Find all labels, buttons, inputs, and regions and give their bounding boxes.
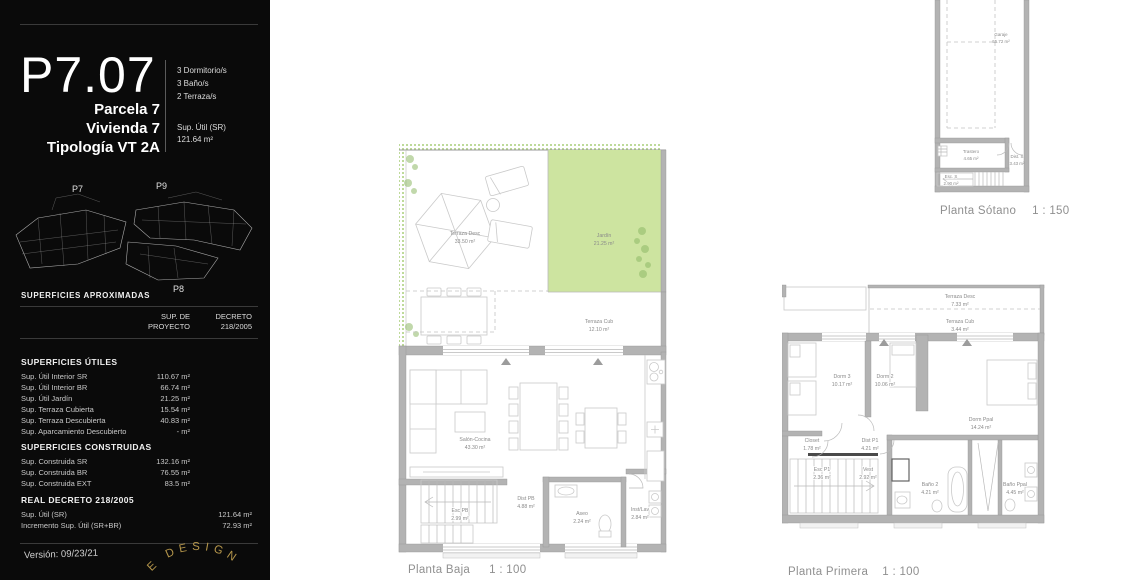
divider	[165, 60, 166, 152]
utiles-rows: Sup. Útil Interior SR110.67 m² Sup. Útil…	[21, 372, 190, 437]
room-labels: Garaje 55.72 m² Trastero 4.65 m² Dist. S…	[944, 32, 1025, 186]
divider	[20, 24, 258, 25]
row-value: 66.74 m²	[160, 383, 190, 394]
spec-banos: 3 Baño/s	[177, 77, 227, 90]
room-label-vest: Vest	[863, 467, 874, 473]
room-area-salon: 43.30 m²	[465, 445, 486, 451]
divider	[20, 306, 258, 307]
planta-baja-caption: Planta Baja 1 : 100	[408, 564, 526, 576]
table-row: Sup. Útil Interior BR66.74 m²	[21, 383, 190, 394]
room-area-bano-ppal: 4.45 m²	[1006, 490, 1024, 496]
room-area-dist: 4.88 m²	[517, 504, 535, 510]
table-row: Sup. Aparcamiento Descubierto- m²	[21, 427, 190, 438]
table-row: Sup. Construida SR132.16 m²	[21, 457, 190, 468]
siteplan-wireframe	[16, 192, 252, 280]
room-label-terraza-cub: Terraza Cub	[946, 319, 974, 325]
caption-scale: 1 : 100	[882, 566, 919, 578]
row-value: 21.25 m²	[160, 394, 190, 405]
planta-sotano-caption: Planta Sótano 1 : 150	[940, 205, 1069, 217]
room-area-closet: 1.78 m²	[803, 446, 821, 452]
row-label: Incremento Sup. Útil (SR+BR)	[21, 521, 121, 532]
room-label-dist-s: Dist. S	[1011, 154, 1024, 159]
room-label-terraza-desc: Terraza Desc	[945, 294, 976, 300]
row-value: 40.83 m²	[160, 416, 190, 427]
construidas-title: SUPERFICIES CONSTRUIDAS	[21, 442, 152, 452]
room-area-bano2: 4.21 m²	[921, 490, 939, 496]
room-label-dist: Dist PB	[517, 496, 535, 502]
row-label: Sup. Útil Interior SR	[21, 372, 87, 383]
room-label-dist-p1: Dist P1	[862, 438, 879, 444]
interior-furniture	[410, 355, 665, 481]
construidas-rows: Sup. Construida SR132.16 m² Sup. Constru…	[21, 457, 190, 490]
room-area-aseo: 2.24 m²	[573, 519, 591, 525]
row-label: Sup. Útil (SR)	[21, 510, 67, 521]
caption-label: Planta Primera	[788, 566, 868, 578]
room-label-esc-s: Esc. S	[945, 174, 958, 179]
table-header-decreto: DECRETO 218/2005	[21, 312, 252, 332]
unit-specs: 3 Dormitorio/s 3 Baño/s 2 Terraza/s	[177, 64, 227, 103]
room-area-dorm2: 10.06 m²	[875, 382, 896, 388]
brand-logo-arc: E DESIGN	[128, 538, 270, 580]
room-area-trastero: 4.65 m²	[964, 156, 979, 161]
room-area-terraza-cub: 12.10 m²	[589, 327, 610, 333]
room-label-dorm3: Dorm 3	[833, 374, 850, 380]
garage-layer	[947, 0, 995, 128]
row-label: Sup. Terraza Cubierta	[21, 405, 94, 416]
unit-identity: Parcela 7 Vivienda 7 Tipología VT 2A	[20, 100, 160, 157]
caption-label: Planta Sótano	[940, 205, 1016, 217]
room-label-salon: Salón-Cocina	[459, 437, 490, 443]
room-label-terraza-cub: Terraza Cub	[585, 319, 613, 325]
decreto-rows: Sup. Útil (SR)121.64 m² Incremento Sup. …	[21, 510, 252, 532]
table-row: Sup. Terraza Cubierta15.54 m²	[21, 405, 190, 416]
brand-logo-text: E DESIGN	[145, 541, 242, 574]
room-area-garaje: 55.72 m²	[992, 39, 1010, 44]
room-label-bano2: Baño 2	[922, 482, 939, 488]
version-text: Versión: 09/23/21	[24, 548, 98, 562]
siteplan-label-p9: P9	[156, 181, 167, 191]
room-area-jardin: 21.25 m²	[594, 241, 615, 247]
row-label: Sup. Útil Interior BR	[21, 383, 87, 394]
planta-primera-caption: Planta Primera 1 : 100	[788, 566, 920, 578]
table-row: Incremento Sup. Útil (SR+BR)72.93 m²	[21, 521, 252, 532]
room-label-esc-p1: Esc P1	[814, 467, 831, 473]
row-value: 15.54 m²	[160, 405, 190, 416]
row-label: Sup. Aparcamiento Descubierto	[21, 427, 126, 438]
utiles-title: SUPERFICIES ÚTILES	[21, 357, 117, 367]
room-area-dist-p1: 4.21 m²	[861, 446, 879, 452]
room-label-jardin: Jardín	[597, 233, 612, 239]
room-label-garaje: Garaje	[994, 32, 1008, 37]
planta-sotano-drawing: Garaje 55.72 m² Trastero 4.65 m² Dist. S…	[929, 0, 1035, 198]
tipologia: Tipología VT 2A	[20, 138, 160, 157]
room-label-trastero: Trastero	[963, 149, 980, 154]
room-label-closet: Closet	[805, 438, 820, 444]
room-label-aseo: Aseo	[576, 511, 588, 517]
sidebar: P7.07 3 Dormitorio/s 3 Baño/s 2 Terraza/…	[0, 0, 270, 580]
sup-util-label: Sup. Útil (SR)	[177, 122, 226, 134]
room-label-bano-ppal: Baño Ppal	[1003, 482, 1027, 488]
row-value: 110.67 m²	[157, 372, 190, 383]
row-value: 76.55 m²	[160, 468, 190, 479]
siteplan-drawing: P7 P9 P8	[8, 180, 262, 302]
row-label: Sup. Construida SR	[21, 457, 87, 468]
room-area-esc-p1: 2.36 m²	[813, 475, 831, 481]
planta-primera-drawing: Terraza Desc 7.33 m² Terraza Cub 3.44 m²…	[782, 283, 1048, 533]
row-value: 121.64 m²	[218, 510, 252, 521]
row-value: - m²	[177, 427, 190, 438]
table-row: Sup. Útil Interior SR110.67 m²	[21, 372, 190, 383]
row-label: Sup. Útil Jardín	[21, 394, 72, 405]
datasheet-page: P7.07 3 Dormitorio/s 3 Baño/s 2 Terraza/…	[0, 0, 1127, 580]
approx-title: SUPERFICIES APROXIMADAS	[21, 291, 150, 300]
parcela: Parcela 7	[20, 100, 160, 119]
room-area-dorm3: 10.17 m²	[832, 382, 853, 388]
room-area-esc: 2.99 m²	[451, 516, 469, 522]
table-row: Sup. Útil (SR)121.64 m²	[21, 510, 252, 521]
row-value: 83.5 m²	[165, 479, 190, 490]
row-label: Sup. Construida EXT	[21, 479, 91, 490]
terrace-furniture	[406, 166, 548, 344]
room-label-inst: Inst/Lav	[631, 507, 650, 513]
bath-fixtures	[555, 474, 661, 537]
row-value: 72.93 m²	[222, 521, 252, 532]
header-line: 218/2005	[21, 322, 252, 332]
room-area-inst: 2.84 m²	[631, 515, 649, 521]
caption-scale: 1 : 100	[489, 564, 526, 576]
room-area-terraza-cub: 3.44 m²	[951, 327, 969, 333]
room-label-dorm-ppal: Dorm Ppal	[969, 417, 994, 423]
row-label: Sup. Construida BR	[21, 468, 87, 479]
siteplan-label-p8: P8	[173, 284, 184, 294]
unit-code: P7.07	[20, 46, 156, 104]
spec-dormitorios: 3 Dormitorio/s	[177, 64, 227, 77]
table-row: Sup. Útil Jardín21.25 m²	[21, 394, 190, 405]
sup-util-value: 121.64 m²	[177, 134, 226, 146]
row-label: Sup. Terraza Descubierta	[21, 416, 106, 427]
room-label-dorm2: Dorm 2	[876, 374, 893, 380]
header-line: DECRETO	[21, 312, 252, 322]
table-row: Sup. Terraza Descubierta40.83 m²	[21, 416, 190, 427]
room-area-terraza-desc: 7.33 m²	[951, 302, 969, 308]
terrace-layer	[782, 285, 1044, 335]
room-label-esc: Esc PB	[451, 508, 469, 514]
spec-terrazas: 2 Terraza/s	[177, 90, 227, 103]
room-area-dist-s: 3.43 m²	[1010, 161, 1025, 166]
decreto-title: REAL DECRETO 218/2005	[21, 495, 134, 505]
sup-util-block: Sup. Útil (SR) 121.64 m²	[177, 122, 226, 146]
room-area-vest: 2.92 m²	[859, 475, 877, 481]
room-area-terraza-desc: 33.50 m²	[455, 239, 476, 245]
vivienda: Vivienda 7	[20, 119, 160, 138]
caption-scale: 1 : 150	[1032, 205, 1069, 217]
table-row: Sup. Construida EXT83.5 m²	[21, 479, 190, 490]
room-area-dorm-ppal: 14.24 m²	[971, 425, 992, 431]
divider	[20, 338, 258, 339]
row-value: 132.16 m²	[156, 457, 190, 468]
table-row: Sup. Construida BR76.55 m²	[21, 468, 190, 479]
planta-baja-drawing: Terraza Desc 33.50 m² Jardín 21.25 m² Te…	[393, 139, 685, 563]
siteplan-label-p7: P7	[72, 184, 83, 194]
room-area-esc-s: 2.90 m²	[944, 181, 959, 186]
room-label-terraza-desc: Terraza Desc	[450, 231, 481, 237]
caption-label: Planta Baja	[408, 564, 470, 576]
